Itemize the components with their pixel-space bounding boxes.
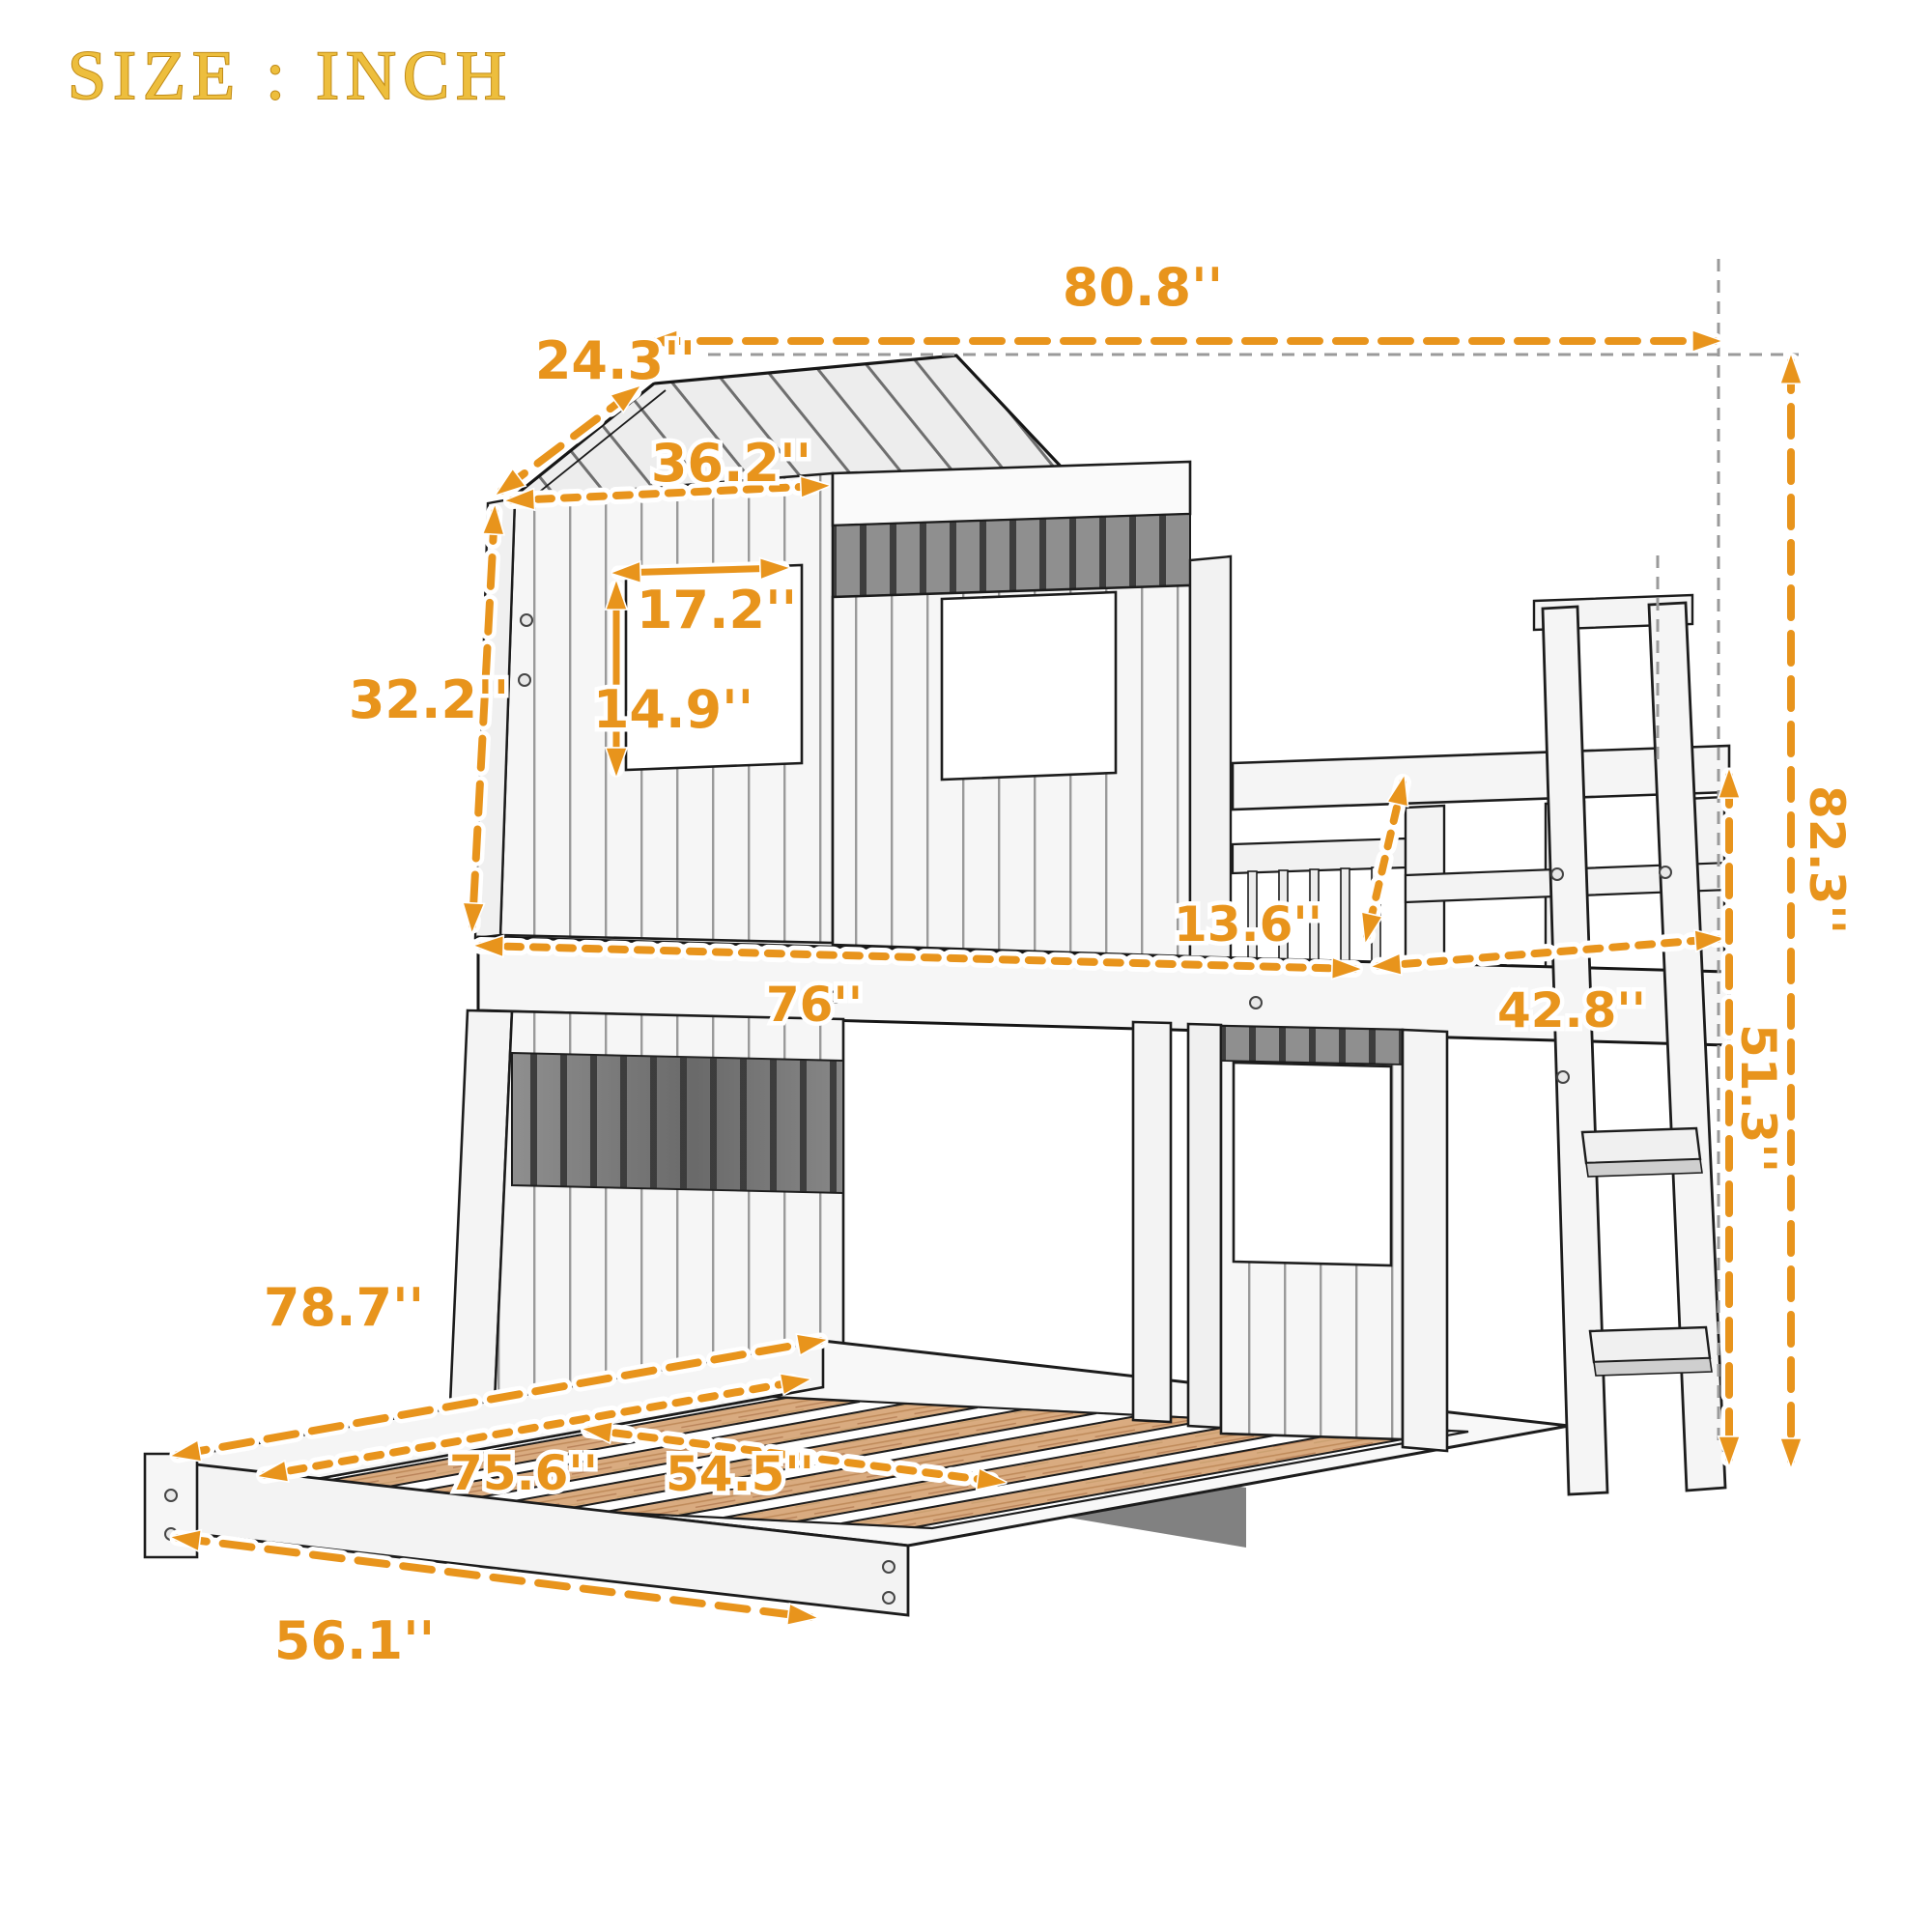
label-total-height: 82.3'' [1799,785,1855,934]
screw [1250,997,1262,1009]
label-bunk-length: 76'' [766,977,863,1033]
label-under-loft-height: 51.3'' [1730,1024,1786,1173]
upper-window-2 [942,592,1116,780]
lower-window [1234,1063,1391,1265]
lower-right-shadow [1221,1026,1403,1065]
label-ladder-section: 42.8'' [1497,982,1646,1038]
screw [519,674,530,686]
diagram-canvas: 80.8'' 24.3'' 36.2'' 17.2'' 14.9'' 32.2'… [0,0,1932,1932]
opening-post-2 [1188,1024,1221,1428]
label-upper-house-height: 32.2'' [349,669,509,730]
lower-corner-post [1403,1030,1447,1451]
screw [883,1592,895,1604]
screw [165,1490,177,1501]
opening-post-1 [1133,1022,1171,1422]
upper-wall-right [833,462,1231,962]
bed-dimension-diagram: 80.8'' 24.3'' 36.2'' 17.2'' 14.9'' 32.2'… [0,0,1932,1932]
ladder [1534,595,1725,1494]
label-railing-height: 13.6'' [1174,896,1322,952]
ladder-rung-1 [1582,1128,1700,1163]
roof-gap-shadow [833,514,1190,597]
screw [883,1561,895,1573]
screw [1551,868,1563,880]
screw [521,614,532,626]
label-bed-inner-length: 75.6'' [449,1445,598,1501]
label-overall-length: 80.8'' [1063,257,1223,318]
label-bed-inner-width: 54.5'' [666,1446,814,1502]
ladder-rung-2 [1590,1327,1710,1362]
screw [1557,1071,1569,1083]
page-title: SIZE : INCH [68,37,513,114]
screw [1660,867,1671,878]
label-roof-slope: 24.3'' [535,330,696,391]
label-window-height: 14.9'' [593,679,753,740]
label-bed-outer-length: 78.7'' [264,1277,424,1338]
dim-window-width [618,568,782,573]
label-roof-edge: 36.2'' [651,433,811,494]
label-bed-outer-width: 56.1'' [274,1610,435,1671]
label-window-width: 17.2'' [637,580,797,640]
